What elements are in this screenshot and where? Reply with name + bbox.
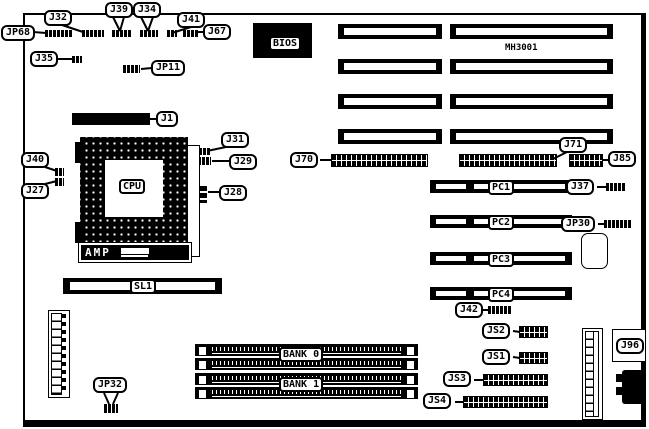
callout-jp68: JP68 bbox=[1, 25, 35, 41]
bank0-label: BANK 0 bbox=[279, 347, 323, 362]
cpu-label: CPU bbox=[119, 179, 145, 194]
callout-j29: J29 bbox=[229, 154, 257, 170]
callout-j96: J96 bbox=[616, 338, 644, 354]
motherboard-diagram: MH3001 BIOS CPU AMP PC1 PC2 PC3 PC4 SL1 … bbox=[0, 0, 649, 429]
callout-jp11: JP11 bbox=[151, 60, 185, 76]
callout-js4: JS4 bbox=[423, 393, 451, 409]
callout-j39: J39 bbox=[105, 2, 133, 18]
callout-j28: J28 bbox=[219, 185, 247, 201]
callout-j67: J67 bbox=[203, 24, 231, 40]
callout-j40: J40 bbox=[21, 152, 49, 168]
callout-j32: J32 bbox=[44, 10, 72, 26]
callout-j37: J37 bbox=[566, 179, 594, 195]
callout-j1: J1 bbox=[156, 111, 178, 127]
pc4-label: PC4 bbox=[488, 287, 514, 302]
bios-chip-label: BIOS bbox=[269, 36, 301, 51]
callout-j85: J85 bbox=[608, 151, 636, 167]
pc3-label: PC3 bbox=[488, 252, 514, 267]
pc1-label: PC1 bbox=[488, 180, 514, 195]
callout-j41: J41 bbox=[177, 12, 205, 28]
callout-js2: JS2 bbox=[482, 323, 510, 339]
callout-j70: J70 bbox=[290, 152, 318, 168]
bank1-label: BANK 1 bbox=[279, 377, 323, 392]
callout-leader-lines bbox=[0, 0, 649, 429]
sl1-label: SL1 bbox=[130, 279, 156, 294]
callout-j31: J31 bbox=[221, 132, 249, 148]
callout-jp32: JP32 bbox=[93, 377, 127, 393]
board-model-text: MH3001 bbox=[505, 43, 538, 53]
callout-jp30: JP30 bbox=[561, 216, 595, 232]
callout-js1: JS1 bbox=[482, 349, 510, 365]
callout-j42: J42 bbox=[455, 302, 483, 318]
callout-j34: J34 bbox=[133, 2, 161, 18]
callout-j27: J27 bbox=[21, 183, 49, 199]
callout-j35: J35 bbox=[30, 51, 58, 67]
pc2-label: PC2 bbox=[488, 215, 514, 230]
callout-j71: J71 bbox=[559, 137, 587, 153]
callout-js3: JS3 bbox=[443, 371, 471, 387]
